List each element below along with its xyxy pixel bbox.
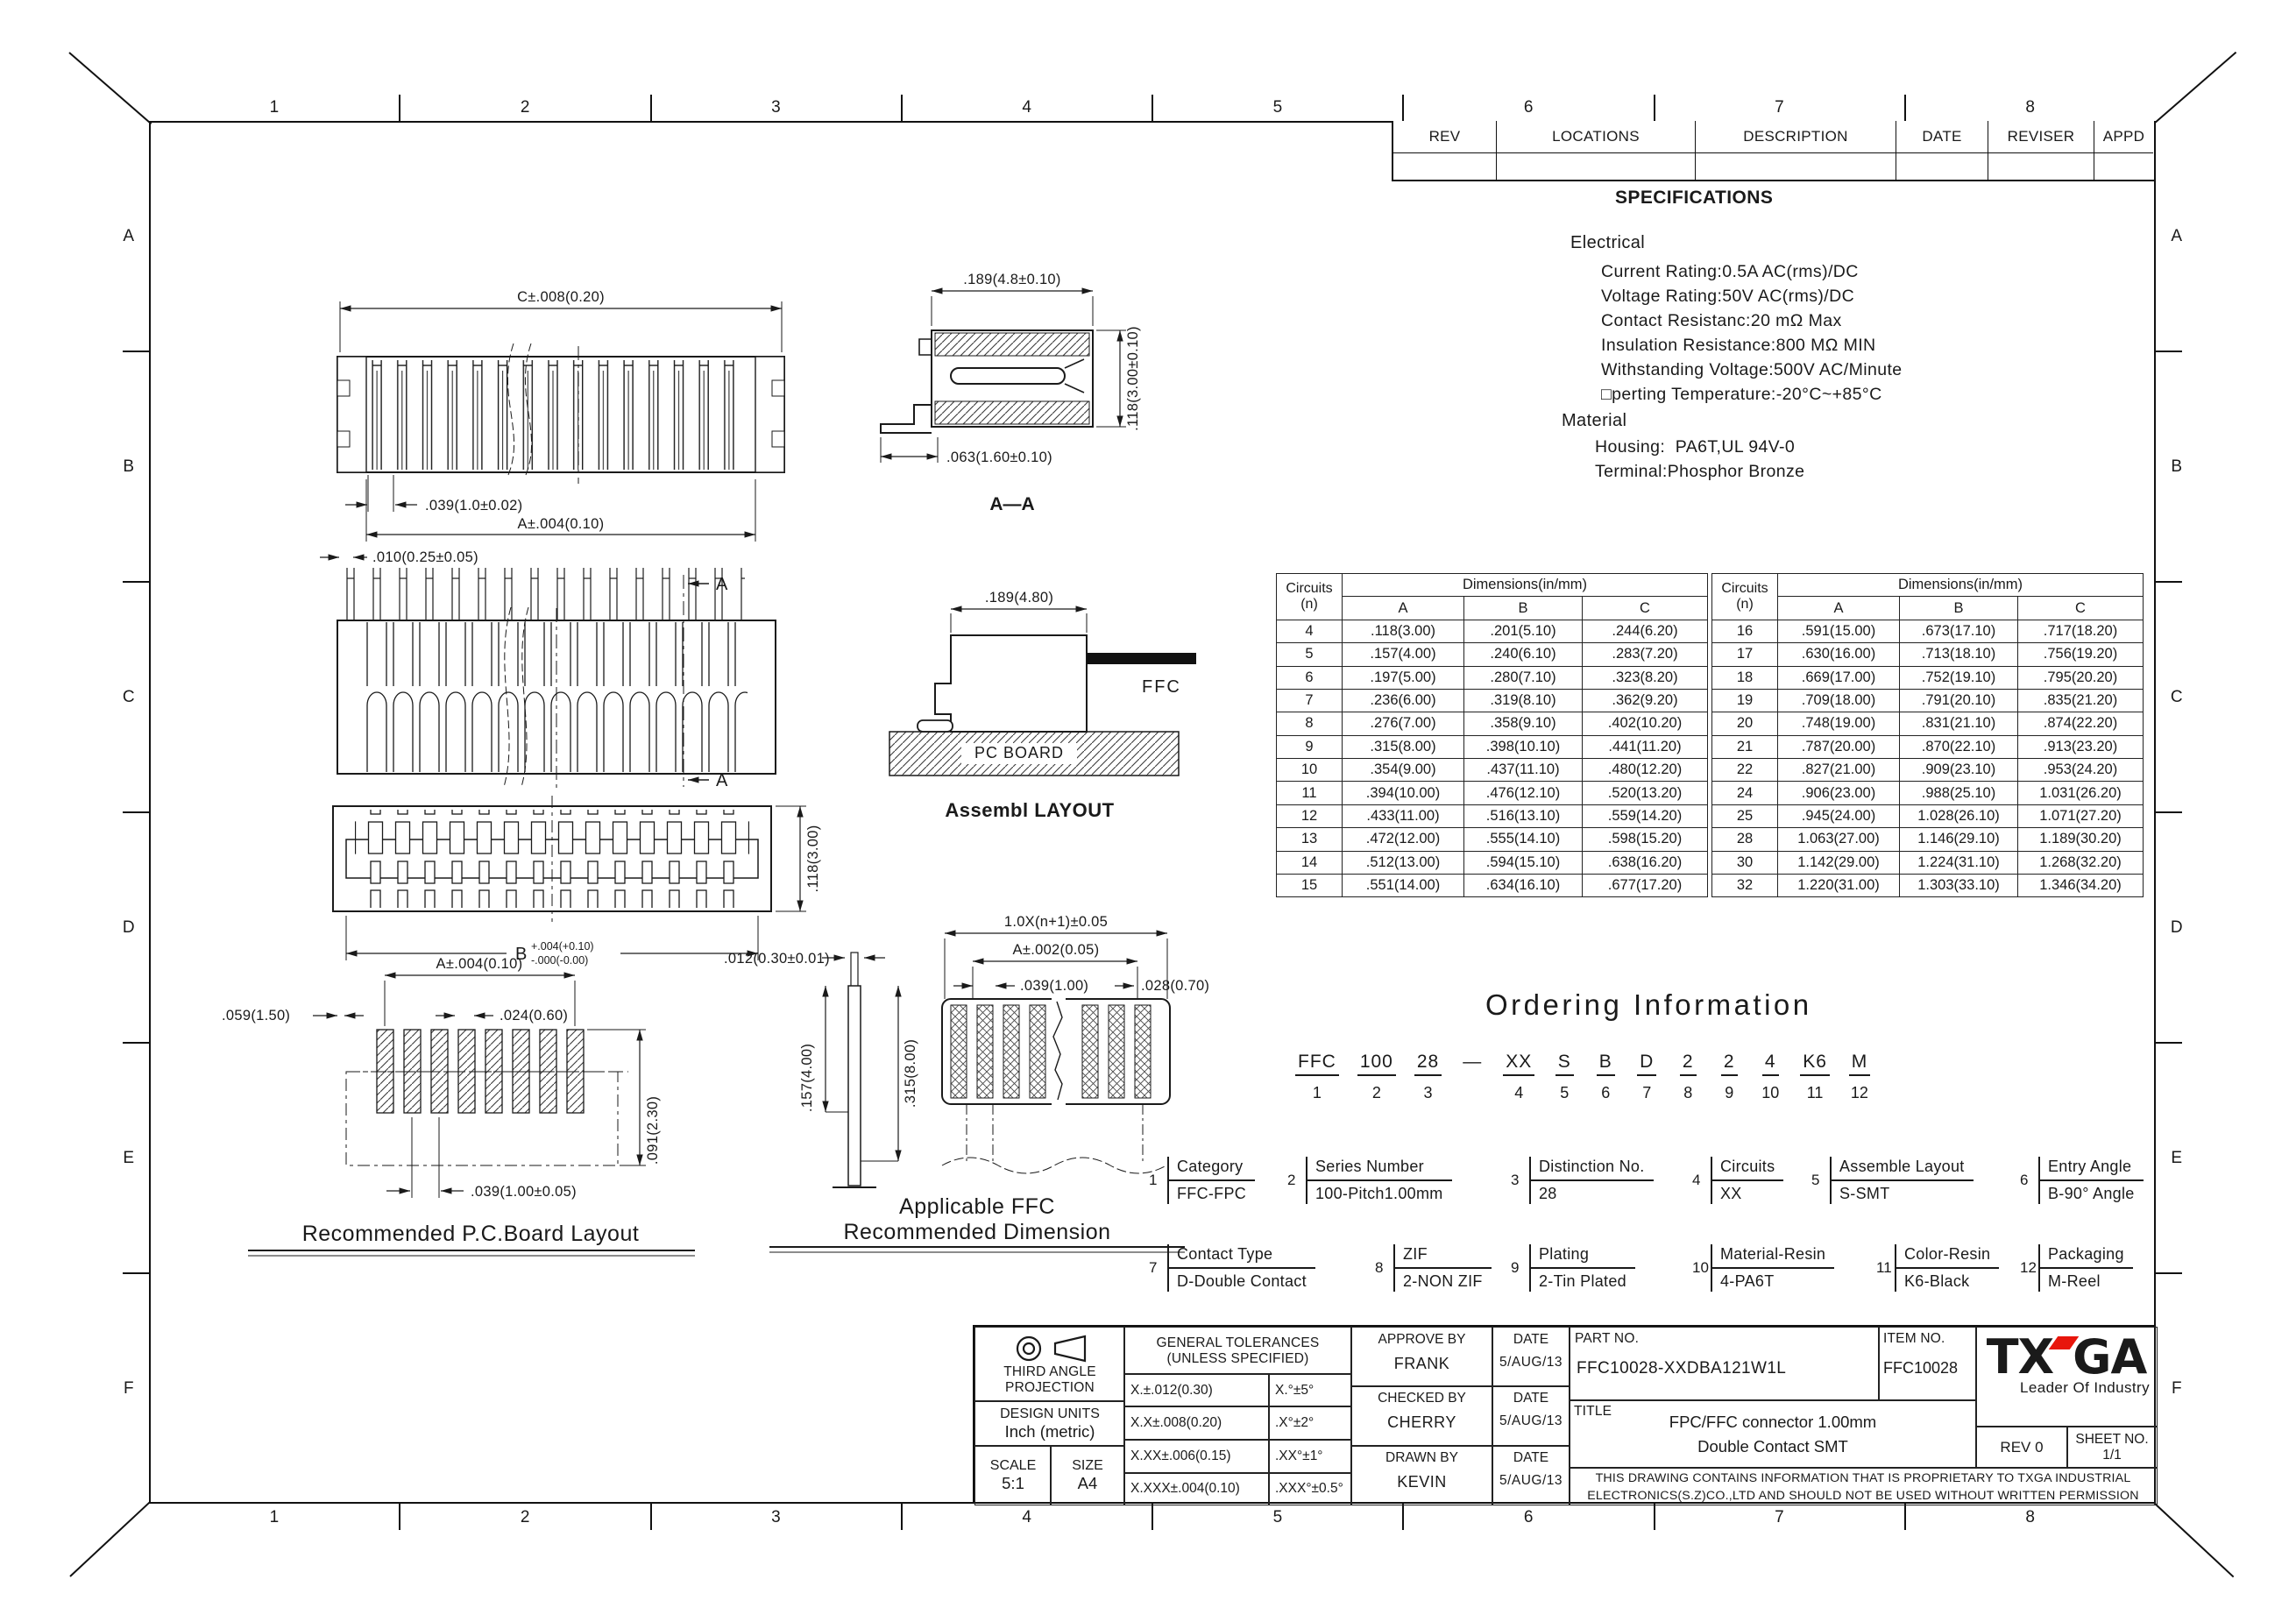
svg-text:A: A (716, 771, 728, 790)
table-cell: .835(21.20) (2018, 689, 2144, 712)
table-cell: .787(20.00) (1778, 735, 1900, 758)
corner-diagonal (2153, 52, 2236, 124)
code-segment: D7 (1635, 1052, 1658, 1102)
checked-date-cell: DATE5/AUG/13 (1492, 1385, 1570, 1447)
corner-diagonal (2153, 1502, 2234, 1577)
table-cell: .638(16.20) (1583, 851, 1708, 874)
table-row: 10.354(9.00).437(11.10).480(12.20) (1277, 759, 1708, 782)
legend-zif: 8ZIF2-NON ZIF (1393, 1244, 1492, 1292)
logo-cell: TX GA Leader Of Industry (1975, 1327, 2158, 1427)
table-cell: .677(17.20) (1583, 874, 1708, 896)
table-row: 6.197(5.00).280(7.10).323(8.20) (1277, 666, 1708, 689)
table-cell: .673(17.10) (1900, 620, 2018, 642)
table-row: 16.591(15.00).673(17.10).717(18.20) (1712, 620, 2144, 642)
border-tick (2156, 811, 2182, 813)
grid-col-label: 6 (1524, 98, 1534, 117)
grid-col-label: 5 (1273, 1508, 1283, 1527)
table-cell: .906(23.00) (1778, 782, 1900, 804)
table-cell: .591(15.00) (1778, 620, 1900, 642)
svg-text:.157(4.00): .157(4.00) (799, 1044, 815, 1112)
table-cell: 1.146(29.10) (1900, 828, 2018, 851)
table-cell: 20 (1712, 712, 1778, 735)
code-segment: XX4 (1503, 1052, 1534, 1102)
border-tick (1904, 1504, 1906, 1530)
corner-diagonal (69, 1502, 150, 1577)
spec-section-electrical: Electrical (1570, 233, 1645, 253)
table-cell: .358(9.10) (1464, 712, 1583, 735)
table-cell: .476(12.10) (1464, 782, 1583, 804)
spec-line: Current Rating:0.5A AC(rms)/DC (1601, 262, 1859, 282)
table-row: 5.157(4.00).240(6.10).283(7.20) (1277, 643, 1708, 666)
table-cell: .201(5.10) (1464, 620, 1583, 642)
dimensions-header: Dimensions(in/mm) (1343, 574, 1708, 597)
grid-col-label: 7 (1775, 98, 1784, 117)
grid-row-label: E (123, 1149, 134, 1168)
code-segment: B6 (1594, 1052, 1617, 1102)
grid-row-label: B (2171, 457, 2182, 477)
border-tick (1654, 1504, 1655, 1530)
section-aa-drawing: .189(4.8±0.10) .063(1.60±0.10) .118(3.00… (863, 256, 1166, 528)
grid-row-label: C (2171, 688, 2183, 707)
table-cell: 1.346(34.20) (2018, 874, 2144, 896)
front-view-drawing: .010(0.25±0.05) A A (285, 524, 833, 813)
sheet-no-cell: SHEET NO. 1/1 (2066, 1426, 2158, 1469)
third-angle-projection-icon (1010, 1333, 1090, 1364)
dimension-table-right: Circuits(n) Dimensions(in/mm) A B C 16.5… (1711, 573, 2144, 897)
tolerance-angle: .X°±2° (1268, 1406, 1352, 1441)
top-view-drawing: C±.008(0.20) .039(1.0±0.02) A±.004(0.10) (289, 256, 815, 549)
legend-material-resin: 10Material-Resin4-PA6T (1711, 1244, 1834, 1292)
table-cell: 1.028(26.10) (1900, 804, 2018, 827)
svg-text:A±.002(0.05): A±.002(0.05) (1013, 942, 1100, 958)
tolerance-value: X.±.012(0.30) (1123, 1373, 1270, 1407)
title-cell: TITLE FPC/FFC connector 1.00mm Double Co… (1569, 1399, 1977, 1469)
legend-entry-angle: 6Entry AngleB-90° Angle (2038, 1157, 2144, 1204)
col-b-header: B (1464, 597, 1583, 620)
corner-diagonal (68, 52, 152, 124)
table-cell: .240(6.10) (1464, 643, 1583, 666)
svg-text:.189(4.80): .189(4.80) (985, 590, 1053, 606)
border-tick (123, 581, 149, 583)
description-col-header: DESCRIPTION (1696, 121, 1896, 153)
tolerance-angle: .XX°±1° (1268, 1439, 1352, 1474)
svg-text:Recommended P.C.Board Layout: Recommended P.C.Board Layout (302, 1222, 640, 1246)
table-row: 19.709(18.00).791(20.10).835(21.20) (1712, 689, 2144, 712)
table-cell: .433(11.00) (1343, 804, 1464, 827)
table-row: 7.236(6.00).319(8.10).362(9.20) (1277, 689, 1708, 712)
table-cell: .480(12.20) (1583, 759, 1708, 782)
spec-line: Withstanding Voltage:500V AC/Minute (1601, 360, 1903, 380)
table-cell: 19 (1712, 689, 1778, 712)
code-segment: 1002 (1357, 1052, 1396, 1102)
size-cell: SIZE A4 (1050, 1445, 1125, 1505)
col-a-header: A (1778, 597, 1900, 620)
table-cell: .555(14.10) (1464, 828, 1583, 851)
table-cell: .795(20.20) (2018, 666, 2144, 689)
approve-date-cell: DATE5/AUG/13 (1492, 1327, 1570, 1387)
table-cell: .157(4.00) (1343, 643, 1464, 666)
border-tick (123, 1042, 149, 1044)
table-cell: .945(24.00) (1778, 804, 1900, 827)
grid-col-label: 8 (2025, 1508, 2035, 1527)
table-cell: 1.224(31.10) (1900, 851, 2018, 874)
revision-table: REV LOCATIONS DESCRIPTION DATE REVISER A… (1392, 121, 2156, 181)
code-separator: — (1460, 1052, 1485, 1082)
rev-cell: REV 0 (1975, 1426, 2068, 1469)
border-tick (399, 1504, 400, 1530)
grid-row-label: B (123, 457, 134, 477)
projection-cell: THIRD ANGLE PROJECTION (974, 1327, 1125, 1402)
grid-col-label: 8 (2025, 98, 2035, 117)
svg-text:1.0X(n+1)±0.05: 1.0X(n+1)±0.05 (1004, 914, 1108, 930)
table-row: 281.063(27.00)1.146(29.10)1.189(30.20) (1712, 828, 2144, 851)
grid-row-label: F (124, 1379, 134, 1399)
table-row: 22.827(21.00).909(23.10).953(24.20) (1712, 759, 2144, 782)
table-row: 4.118(3.00).201(5.10).244(6.20) (1277, 620, 1708, 642)
table-cell: 9 (1277, 735, 1343, 758)
engineering-drawing-page: { "colors": {"line": "#1a1a1a", "accent_… (0, 0, 2296, 1622)
svg-text:.028(0.70): .028(0.70) (1141, 978, 1209, 994)
table-cell: 21 (1712, 735, 1778, 758)
svg-text:A±.004(0.10): A±.004(0.10) (436, 956, 523, 972)
spec-section-material: Material (1562, 411, 1626, 431)
table-cell: .319(8.10) (1464, 689, 1583, 712)
table-cell: 32 (1712, 874, 1778, 896)
table-cell: .437(11.10) (1464, 759, 1583, 782)
grid-col-label: 5 (1273, 98, 1283, 117)
table-cell: .713(18.10) (1900, 643, 2018, 666)
spec-line: Terminal:Phosphor Bronze (1595, 462, 1804, 482)
table-cell: .791(20.10) (1900, 689, 2018, 712)
svg-text:.118(3.00): .118(3.00) (805, 825, 821, 893)
table-cell: .634(16.10) (1464, 874, 1583, 896)
table-cell: .709(18.00) (1778, 689, 1900, 712)
legend-circuits: 4CircuitsXX (1711, 1157, 1783, 1204)
proprietary-notice: THIS DRAWING CONTAINS INFORMATION THAT I… (1569, 1467, 2158, 1505)
spec-line: □perting Temperature:-20°C~+85°C (1601, 385, 1882, 405)
border-tick (2156, 581, 2182, 583)
pcb-layout-drawing: A±.004(0.10) .059(1.50) .024(0.60) .039(… (215, 942, 727, 1266)
table-row: 301.142(29.00)1.224(31.10)1.268(32.20) (1712, 851, 2144, 874)
table-cell: .362(9.20) (1583, 689, 1708, 712)
table-cell: .315(8.00) (1343, 735, 1464, 758)
border-tick (901, 95, 903, 121)
border-tick (2156, 1042, 2182, 1044)
table-cell: 1.268(32.20) (2018, 851, 2144, 874)
legend-plating: 9Plating2-Tin Plated (1529, 1244, 1635, 1292)
circuits-header: Circuits(n) (1277, 574, 1343, 620)
tolerance-value: X.XX±.006(0.15) (1123, 1439, 1270, 1474)
table-row: 8.276(7.00).358(9.10).402(10.20) (1277, 712, 1708, 735)
table-cell: .512(13.00) (1343, 851, 1464, 874)
border-tick (399, 95, 400, 121)
col-b-header: B (1900, 597, 2018, 620)
legend-distinction-no: 3Distinction No.28 (1529, 1157, 1654, 1204)
table-cell: 11 (1277, 782, 1343, 804)
reviser-col-header: REVISER (1988, 121, 2094, 153)
table-cell: 7 (1277, 689, 1343, 712)
table-cell: 1.031(26.20) (2018, 782, 2144, 804)
table-cell: .236(6.00) (1343, 689, 1464, 712)
col-c-header: C (2018, 597, 2144, 620)
svg-text:.039(1.0±0.02): .039(1.0±0.02) (425, 498, 522, 514)
table-cell: 24 (1712, 782, 1778, 804)
code-segment: FFC1 (1295, 1052, 1339, 1102)
table-cell: .354(9.00) (1343, 759, 1464, 782)
tolerances-header-cell: GENERAL TOLERANCES (UNLESS SPECIFIED) (1123, 1327, 1352, 1375)
grid-row-label: E (2171, 1149, 2182, 1168)
grid-col-label: 3 (771, 98, 781, 117)
tolerance-value: X.XXX±.004(0.10) (1123, 1472, 1270, 1505)
table-cell: 10 (1277, 759, 1343, 782)
table-cell: 15 (1277, 874, 1343, 896)
svg-text:PC BOARD: PC BOARD (974, 744, 1064, 761)
item-no-cell: ITEM NO. FFC10028 (1878, 1327, 1977, 1401)
border-tick (2156, 351, 2182, 352)
specifications-title: SPECIFICATIONS (1615, 188, 1773, 209)
table-cell: .398(10.10) (1464, 735, 1583, 758)
svg-text:.012(0.30±0.01): .012(0.30±0.01) (724, 951, 830, 967)
grid-col-label: 4 (1022, 1508, 1031, 1527)
svg-text:Assembl LAYOUT: Assembl LAYOUT (945, 799, 1114, 821)
table-cell: .402(10.20) (1583, 712, 1708, 735)
border-tick (123, 811, 149, 813)
table-cell: .551(14.00) (1343, 874, 1464, 896)
table-cell: .717(18.20) (2018, 620, 2144, 642)
code-segment: M12 (1848, 1052, 1871, 1102)
table-row: 11.394(10.00).476(12.10).520(13.20) (1277, 782, 1708, 804)
table-row: 13.472(12.00).555(14.10).598(15.20) (1277, 828, 1708, 851)
table-row: 17.630(16.00).713(18.10).756(19.20) (1712, 643, 2144, 666)
svg-text:.189(4.8±0.10): .189(4.8±0.10) (963, 272, 1060, 287)
border-tick (1402, 95, 1404, 121)
approve-by-cell: APPROVE BYFRANK (1350, 1327, 1493, 1387)
table-row: 321.220(31.00)1.303(33.10)1.346(34.20) (1712, 874, 2144, 896)
table-row: 14.512(13.00).594(15.10).638(16.20) (1277, 851, 1708, 874)
scale-cell: SCALE 5:1 (974, 1445, 1052, 1505)
drawn-by-cell: DRAWN BYKEVIN (1350, 1445, 1493, 1505)
tolerance-angle: .XXX°±0.5° (1268, 1472, 1352, 1505)
border-tick (1152, 95, 1153, 121)
table-cell: .441(11.20) (1583, 735, 1708, 758)
table-cell: 17 (1712, 643, 1778, 666)
grid-row-label: A (123, 227, 134, 246)
border-tick (1402, 1504, 1404, 1530)
date-col-header: DATE (1896, 121, 1988, 153)
svg-text:.091(2.30): .091(2.30) (645, 1096, 661, 1165)
legend-color-resin: 11Color-ResinK6-Black (1895, 1244, 1999, 1292)
table-cell: .752(19.10) (1900, 666, 2018, 689)
table-cell: .516(13.10) (1464, 804, 1583, 827)
table-cell: .283(7.20) (1583, 643, 1708, 666)
table-cell: 1.063(27.00) (1778, 828, 1900, 851)
revision-table-empty-row (1393, 153, 2154, 180)
svg-text:Recommended Dimension: Recommended Dimension (843, 1220, 1110, 1244)
table-row: 9.315(8.00).398(10.10).441(11.20) (1277, 735, 1708, 758)
grid-col-label: 6 (1524, 1508, 1534, 1527)
border-tick (1152, 1504, 1153, 1530)
svg-text:.024(0.60): .024(0.60) (500, 1008, 568, 1023)
border-tick (650, 95, 652, 121)
svg-text:.039(1.00): .039(1.00) (1020, 978, 1088, 994)
table-cell: 28 (1712, 828, 1778, 851)
grid-col-label: 2 (521, 1508, 530, 1527)
ffc-dimension-drawing: .012(0.30±0.01) .157(4.00) .315(8.00) 1.… (719, 898, 1209, 1262)
code-segment: 29 (1718, 1052, 1740, 1102)
grid-row-label: D (123, 918, 135, 938)
border-tick (1654, 95, 1655, 121)
table-row: 18.669(17.00).752(19.10).795(20.20) (1712, 666, 2144, 689)
grid-col-label: 7 (1775, 1508, 1784, 1527)
table-cell: 1.303(33.10) (1900, 874, 2018, 896)
grid-row-label: C (123, 688, 135, 707)
table-row: 12.433(11.00).516(13.10).559(14.20) (1277, 804, 1708, 827)
code-segment: K611 (1800, 1052, 1830, 1102)
grid-row-label: A (2171, 227, 2182, 246)
border-tick (901, 1504, 903, 1530)
table-cell: 13 (1277, 828, 1343, 851)
table-cell: 30 (1712, 851, 1778, 874)
grid-col-label: 1 (270, 1508, 280, 1527)
code-segment: 28 (1676, 1052, 1699, 1102)
table-cell: .244(6.20) (1583, 620, 1708, 642)
part-no-cell: PART NO. FFC10028-XXDBA121W1L (1569, 1327, 1880, 1401)
grid-col-label: 1 (270, 98, 280, 117)
table-cell: .598(15.20) (1583, 828, 1708, 851)
checked-by-cell: CHECKED BYCHERRY (1350, 1385, 1493, 1447)
col-a-header: A (1343, 597, 1464, 620)
svg-text:.059(1.50): .059(1.50) (222, 1008, 290, 1023)
table-cell: .748(19.00) (1778, 712, 1900, 735)
table-cell: .394(10.00) (1343, 782, 1464, 804)
table-cell: 14 (1277, 851, 1343, 874)
table-cell: 16 (1712, 620, 1778, 642)
dimensions-header: Dimensions(in/mm) (1778, 574, 2144, 597)
table-row: 20.748(19.00).831(21.10).874(22.20) (1712, 712, 2144, 735)
table-cell: .756(19.20) (2018, 643, 2144, 666)
dimension-table-left: Circuits(n) Dimensions(in/mm) A B C 4.11… (1276, 573, 1708, 897)
table-cell: 6 (1277, 666, 1343, 689)
col-c-header: C (1583, 597, 1708, 620)
table-cell: .472(12.00) (1343, 828, 1464, 851)
table-cell: .323(8.20) (1583, 666, 1708, 689)
table-cell: 1.189(30.20) (2018, 828, 2144, 851)
table-cell: .559(14.20) (1583, 804, 1708, 827)
table-cell: .520(13.20) (1583, 782, 1708, 804)
spec-line: Voltage Rating:50V AC(rms)/DC (1601, 287, 1854, 307)
border-tick (2156, 1272, 2182, 1274)
border-tick (1904, 95, 1906, 121)
table-cell: 8 (1277, 712, 1343, 735)
table-cell: 25 (1712, 804, 1778, 827)
grid-col-label: 3 (771, 1508, 781, 1527)
title-block: THIRD ANGLE PROJECTION DESIGN UNITS Inch… (973, 1325, 2156, 1504)
legend-packaging: 12PackagingM-Reel (2038, 1244, 2133, 1292)
table-row: 24.906(23.00).988(25.10)1.031(26.20) (1712, 782, 2144, 804)
table-cell: 1.142(29.00) (1778, 851, 1900, 874)
table-cell: .831(21.10) (1900, 712, 2018, 735)
table-cell: .669(17.00) (1778, 666, 1900, 689)
svg-text:.063(1.60±0.10): .063(1.60±0.10) (946, 450, 1052, 465)
border-tick (123, 1272, 149, 1274)
table-cell: .594(15.10) (1464, 851, 1583, 874)
appd-col-header: APPD (2094, 121, 2153, 153)
table-cell: .827(21.00) (1778, 759, 1900, 782)
svg-text:.039(1.00±0.05): .039(1.00±0.05) (471, 1184, 577, 1200)
grid-row-label: F (2172, 1379, 2182, 1399)
circuits-header: Circuits(n) (1712, 574, 1778, 620)
grid-col-label: 2 (521, 98, 530, 117)
revision-table-header: REV LOCATIONS DESCRIPTION DATE REVISER A… (1393, 121, 2154, 153)
table-cell: .870(22.10) (1900, 735, 2018, 758)
table-cell: .197(5.00) (1343, 666, 1464, 689)
svg-text:.010(0.25±0.05): .010(0.25±0.05) (372, 549, 478, 565)
rev-col-header: REV (1393, 121, 1497, 153)
svg-text:C±.008(0.20): C±.008(0.20) (517, 289, 605, 305)
table-cell: 1.220(31.00) (1778, 874, 1900, 896)
border-tick (650, 1504, 652, 1530)
svg-text:FFC: FFC (1142, 677, 1181, 697)
ordering-code-row: FFC1 1002 283 — XX4 S5 B6 D7 28 29 410 K… (1295, 1052, 1871, 1102)
code-segment: 410 (1759, 1052, 1782, 1102)
table-row: 21.787(20.00).870(22.10).913(23.20) (1712, 735, 2144, 758)
spec-line: Housing: PA6T,UL 94V-0 (1595, 437, 1795, 457)
table-cell: .913(23.20) (2018, 735, 2144, 758)
svg-text:A—A: A—A (989, 494, 1034, 514)
table-cell: 18 (1712, 666, 1778, 689)
table-cell: 22 (1712, 759, 1778, 782)
code-segment: S5 (1553, 1052, 1576, 1102)
legend-series-number: 2Series Number100-Pitch1.00mm (1306, 1157, 1452, 1204)
grid-row-label: D (2171, 918, 2183, 938)
design-units-cell: DESIGN UNITS Inch (metric) (974, 1400, 1125, 1447)
spec-line: Contact Resistanc:20 mΩ Max (1601, 311, 1842, 331)
table-row: 25.945(24.00)1.028(26.10)1.071(27.20) (1712, 804, 2144, 827)
txga-logo: TX GA (1976, 1328, 2157, 1382)
grid-col-label: 4 (1022, 98, 1031, 117)
table-cell: 4 (1277, 620, 1343, 642)
tolerance-angle: X.°±5° (1268, 1373, 1352, 1407)
code-segment: 283 (1414, 1052, 1442, 1102)
table-cell: .630(16.00) (1778, 643, 1900, 666)
ordering-information-title: Ordering Information (1485, 988, 1812, 1022)
drawn-date-cell: DATE5/AUG/13 (1492, 1445, 1570, 1505)
table-cell: 12 (1277, 804, 1343, 827)
table-cell: .874(22.20) (2018, 712, 2144, 735)
locations-col-header: LOCATIONS (1497, 121, 1696, 153)
table-cell: .909(23.10) (1900, 759, 2018, 782)
table-cell: 1.071(27.20) (2018, 804, 2144, 827)
svg-text:.118(3.00±0.10): .118(3.00±0.10) (1125, 326, 1141, 431)
table-cell: 5 (1277, 643, 1343, 666)
legend-assemble-layout: 5Assemble LayoutS-SMT (1830, 1157, 1974, 1204)
svg-text:A: A (716, 575, 728, 594)
table-cell: .280(7.10) (1464, 666, 1583, 689)
assembly-layout-drawing: .189(4.80) FFC PC BOARD Assembl LAYOUT (863, 570, 1209, 832)
table-cell: .988(25.10) (1900, 782, 2018, 804)
table-cell: .953(24.20) (2018, 759, 2144, 782)
spec-line: Insulation Resistance:800 MΩ MIN (1601, 336, 1876, 356)
table-row: 15.551(14.00).634(16.10).677(17.20) (1277, 874, 1708, 896)
table-cell: .118(3.00) (1343, 620, 1464, 642)
border-tick (123, 351, 149, 352)
svg-text:.315(8.00): .315(8.00) (903, 1039, 918, 1108)
table-cell: .276(7.00) (1343, 712, 1464, 735)
svg-text:Applicable FFC: Applicable FFC (899, 1194, 1055, 1219)
tolerance-value: X.X±.008(0.20) (1123, 1406, 1270, 1441)
